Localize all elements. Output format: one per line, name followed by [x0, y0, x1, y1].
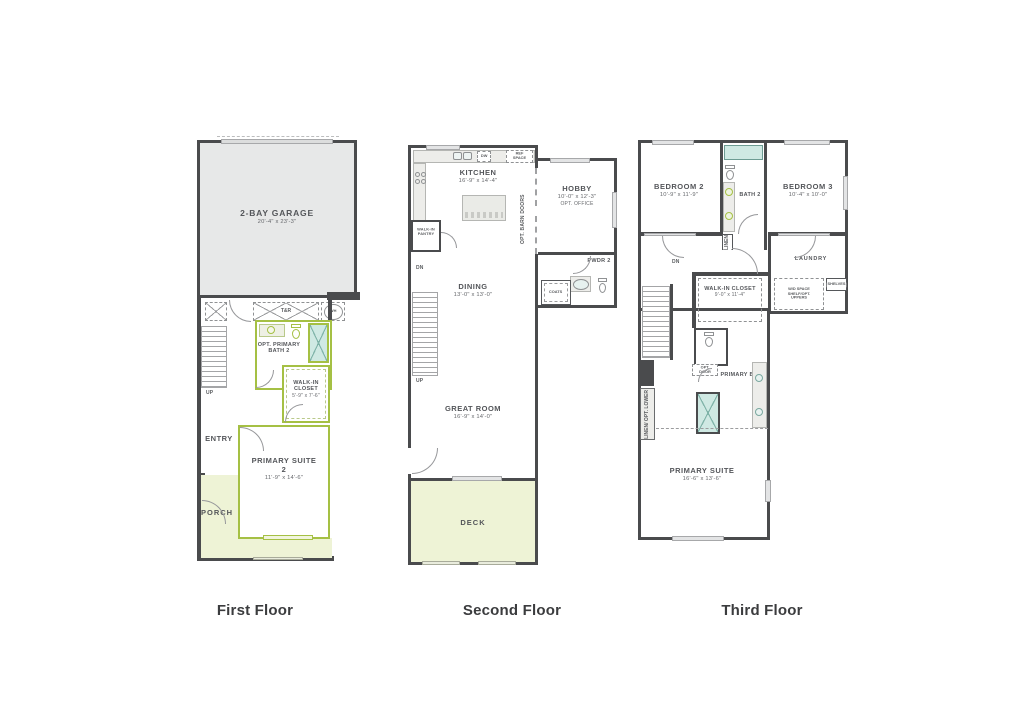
sink-icon	[725, 188, 733, 196]
garage-door	[221, 139, 333, 144]
cooktop-burner-icon	[415, 179, 420, 184]
wd-space-label: W/D SPACE SHELF/OPT. UPPERS	[781, 288, 817, 301]
coats-label: COATS	[549, 290, 564, 294]
tub-icon	[724, 145, 763, 160]
stairs-second-floor	[412, 292, 438, 376]
kitchen-island	[462, 195, 506, 221]
garage-door-dashed-line	[217, 136, 339, 137]
first-floor-title: First Floor	[185, 602, 325, 619]
sink-icon	[755, 408, 763, 416]
window	[478, 561, 516, 565]
entry-name: ENTRY	[199, 434, 239, 443]
second-floor-plan: DW REF SPACE KITCHEN 16'-9" x 14'-4" WAL…	[400, 140, 622, 572]
dishwasher-box: DW	[477, 151, 491, 162]
window	[765, 480, 771, 502]
laundry-label: LAUNDRY	[776, 256, 846, 262]
dining-dims: 13'-0" x 13'-0"	[430, 292, 516, 298]
second-floor-title: Second Floor	[442, 602, 582, 619]
bath2-name: BATH 2	[736, 192, 764, 198]
toilet-tank-icon	[704, 332, 714, 336]
window	[612, 192, 617, 228]
barn-door-dashed	[535, 216, 537, 254]
walk-in-closet-dims: 5'-9" x 7'-6"	[282, 394, 330, 400]
primary-suite-label: PRIMARY SUITE 16'-6" x 13'-6"	[652, 466, 752, 482]
walk-in-closet-3-label: WALK-IN CLOSET 9'-0" x 11'-4"	[700, 286, 760, 299]
kitchen-sink-icon	[453, 152, 462, 160]
porch-strip	[201, 538, 332, 558]
linen-opt-lower-label: LINEN/ OPT. LOWER	[644, 390, 652, 439]
primary-suite-2-label: PRIMARY SUITE 2 11'-9" x 14'-6"	[251, 456, 317, 481]
walk-in-closet-label: WALK-IN CLOSET 5'-9" x 7'-6"	[282, 380, 330, 399]
bedroom3-dims: 10'-4" x 10'-0"	[770, 192, 846, 198]
opt-primary-bath-label: OPT. PRIMARY BATH 2	[255, 342, 303, 355]
kitchen-sink-icon	[463, 152, 472, 160]
garage-dims: 20'-4" x 23'-3"	[207, 219, 347, 225]
door-arc	[229, 300, 251, 322]
garage-name: 2-BAY GARAGE	[207, 208, 347, 218]
linen-label: LINEN	[724, 235, 732, 250]
primary-suite-2-name: PRIMARY SUITE 2	[251, 456, 317, 474]
water-heater-box: WH	[321, 302, 345, 321]
wall-segment	[692, 272, 696, 328]
wall-segment	[670, 284, 673, 360]
primary-suite-name: PRIMARY SUITE	[652, 466, 752, 475]
window	[652, 140, 694, 145]
floorplan-canvas: 2-BAY GARAGE 20'-4" x 23'-3" T&R WH UP P…	[0, 0, 1024, 705]
cooktop-burner-icon	[421, 172, 426, 177]
deck-label: DECK	[444, 518, 502, 527]
hobby-name: HOBBY	[545, 184, 609, 193]
dining-name: DINING	[430, 282, 516, 291]
bedroom2-dims: 10'-9" x 11'-9"	[640, 192, 718, 198]
up-label: UP	[206, 391, 213, 397]
sliding-door	[452, 476, 502, 481]
first-floor-plan: 2-BAY GARAGE 20'-4" x 23'-3" T&R WH UP P…	[193, 136, 371, 568]
up-label: UP	[416, 379, 423, 385]
primary-suite-dims: 16'-6" x 13'-6"	[652, 476, 752, 482]
dn-label: DN	[672, 260, 680, 266]
walk-in-closet-name: WALK-IN CLOSET	[282, 380, 330, 393]
toilet-tank-icon	[291, 324, 301, 328]
window	[253, 557, 303, 560]
kitchen-name: KITCHEN	[438, 168, 518, 177]
toilet-tank-icon	[598, 278, 607, 282]
utility-hatch-box	[205, 302, 227, 321]
sink-icon	[755, 374, 763, 382]
opt-primary-bath-name: OPT. PRIMARY BATH 2	[255, 342, 303, 355]
toilet-tank-icon	[725, 165, 735, 169]
sink-icon	[725, 212, 733, 220]
window	[672, 536, 724, 541]
great-room-name: GREAT ROOM	[444, 404, 502, 413]
great-room-dims: 16'-9" x 14'-0"	[444, 414, 502, 420]
bedroom2-label: BEDROOM 2 10'-9" x 11'-9"	[640, 182, 718, 198]
kitchen-dims: 16'-9" x 14'-4"	[438, 178, 518, 184]
stairs-first-floor	[201, 326, 227, 388]
sink-icon	[573, 279, 589, 290]
bedroom3-label: BEDROOM 3 10'-4" x 10'-0"	[770, 182, 846, 198]
primary-suite-2-dims: 11'-9" x 14'-6"	[251, 475, 317, 481]
walk-in-closet-3-dims: 9'-0" x 11'-4"	[700, 293, 760, 299]
ref-label: REF SPACE	[510, 152, 530, 161]
cooktop-burner-icon	[421, 179, 426, 184]
wall-segment	[638, 360, 654, 386]
shelves-box: SHELVES	[826, 278, 847, 291]
wall-segment	[692, 272, 770, 276]
tandr-label: T&R	[280, 309, 292, 315]
great-room-label: GREAT ROOM 16'-9" x 14'-0"	[444, 404, 502, 420]
coats-closet: COATS	[541, 280, 571, 305]
suite-dashed-boundary	[656, 428, 768, 429]
entry-label: ENTRY	[199, 434, 239, 443]
hobby-dims: 10'-0" x 12'-3"	[545, 194, 609, 200]
cooktop-burner-icon	[415, 172, 420, 177]
linen-opt-lower-cabinet: LINEN/ OPT. LOWER	[640, 388, 655, 440]
wall-segment	[538, 252, 617, 255]
window	[263, 535, 313, 540]
bath2-label: BATH 2	[736, 192, 764, 198]
barn-door-dashed	[535, 168, 537, 206]
washer-dryer-space: W/D SPACE SHELF/OPT. UPPERS	[774, 278, 824, 310]
pantry-label: WALK-IN PANTRY	[412, 227, 440, 238]
garage-label: 2-BAY GARAGE 20'-4" x 23'-3"	[207, 208, 347, 226]
window	[784, 140, 830, 145]
walk-in-closet-3-area	[698, 278, 762, 322]
dn-label: DN	[416, 266, 424, 272]
third-floor-plan: BATH 2 LINEN BEDROOM 2 10'-9" x 11'-9" B…	[636, 136, 852, 558]
pantry-name: WALK-IN PANTRY	[415, 228, 437, 237]
kitchen-label: KITCHEN 16'-9" x 14'-4"	[438, 168, 518, 184]
stairs-third-floor	[642, 286, 670, 358]
ref-space-box: REF SPACE	[506, 150, 533, 163]
barn-doors-label: OPT. BARN DOORS	[521, 180, 527, 244]
third-floor-title: Third Floor	[692, 602, 832, 619]
laundry-name: LAUNDRY	[776, 256, 846, 262]
shower-icon	[308, 323, 329, 363]
window	[550, 158, 590, 163]
window	[422, 561, 460, 565]
bedroom2-name: BEDROOM 2	[640, 182, 718, 191]
hobby-note: OPT. OFFICE	[545, 201, 609, 207]
wall-segment	[764, 140, 767, 250]
hobby-label: HOBBY 10'-0" x 12'-3" OPT. OFFICE	[545, 184, 609, 207]
primary-bath-vanity	[752, 362, 767, 428]
sink-icon	[267, 326, 275, 334]
island-seating-hatch	[465, 212, 503, 218]
shelves-label: SHELVES	[827, 282, 846, 286]
dining-label: DINING 13'-0" x 13'-0"	[430, 282, 516, 298]
tandr-hatch-box: T&R	[253, 302, 319, 321]
bedroom3-name: BEDROOM 3	[770, 182, 846, 191]
deck-name: DECK	[444, 518, 502, 527]
dw-label: DW	[480, 154, 488, 158]
